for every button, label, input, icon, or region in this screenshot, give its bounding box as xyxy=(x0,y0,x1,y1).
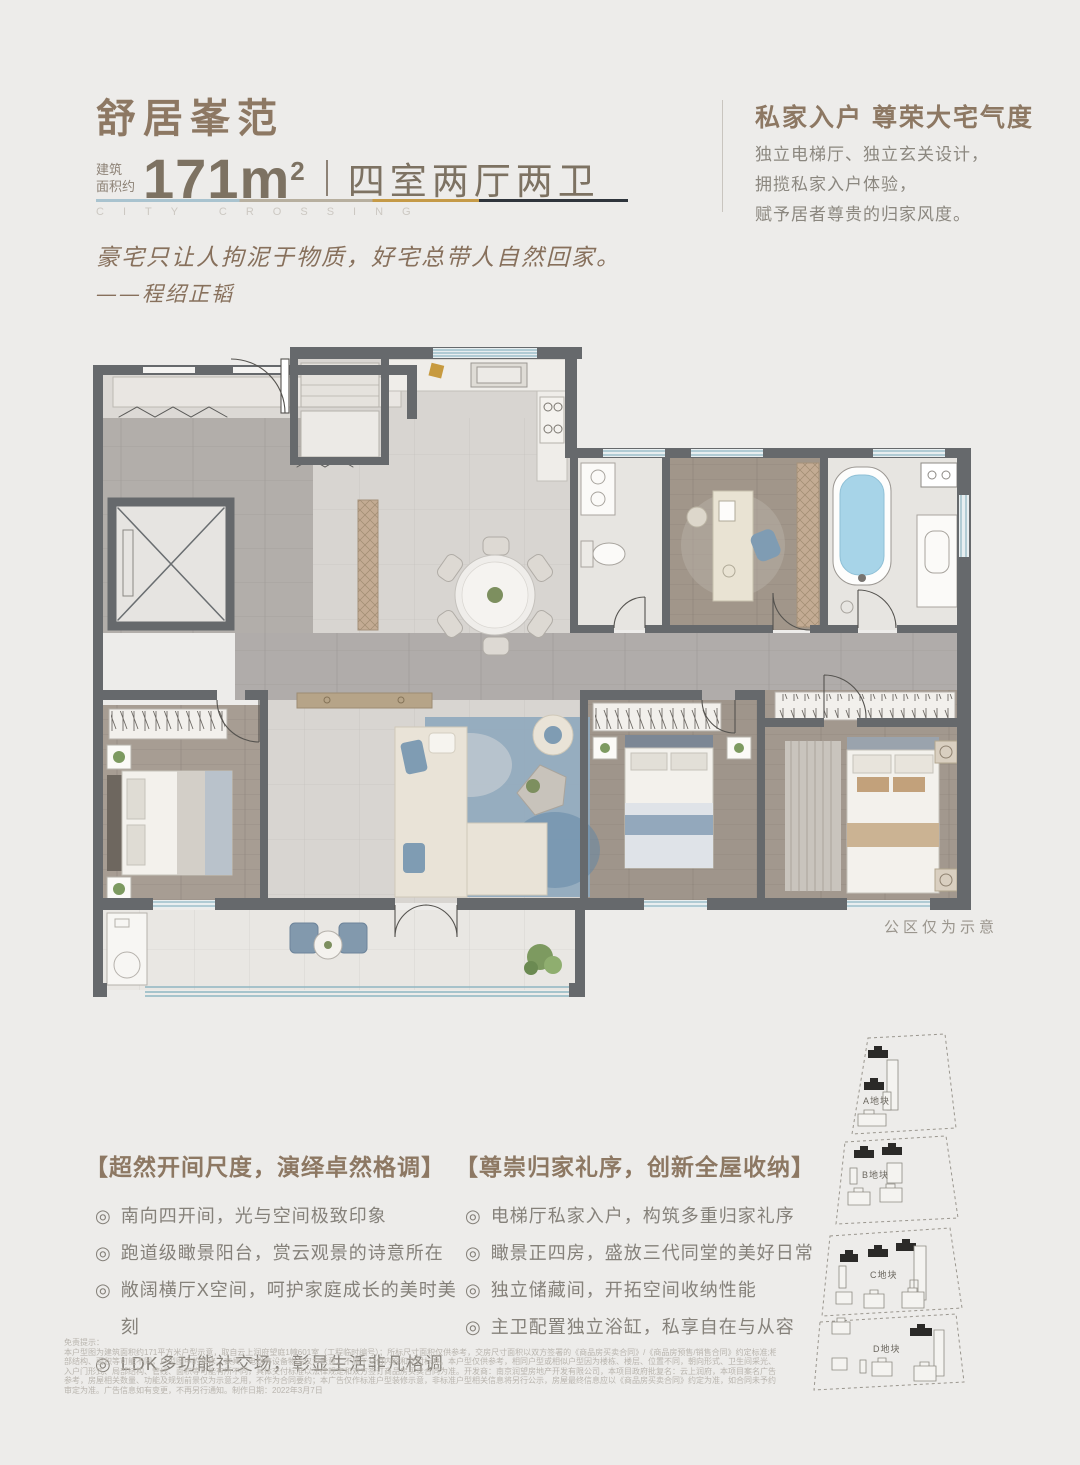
disclaimer-line: 参考，房屋相关数量、功能及规划前景仅为示意之用，不作为合同要约；本广告仅作标准户… xyxy=(64,1376,776,1386)
highlight-body: 独立电梯厅、独立玄关设计， 拥揽私家入户体验， 赋予居者尊贵的归家风度。 xyxy=(755,140,989,230)
highlight-line: 独立电梯厅、独立玄关设计， xyxy=(755,140,989,170)
disclaimer-line: 入户门形式、局部结构、管线、面积等可能有所不同，具体交付标准以法律规定和双方签订… xyxy=(64,1367,776,1377)
feature-item: ◎跑道级瞰景阳台，赏云观景的诗意所在 xyxy=(95,1235,465,1272)
toilet-tank xyxy=(581,541,593,567)
bullet-icon: ◎ xyxy=(95,1272,112,1346)
highlight-line: 拥揽私家入户体验， xyxy=(755,170,989,200)
bullet-icon: ◎ xyxy=(465,1235,482,1272)
brand-gradient-line xyxy=(96,199,628,202)
page-title: 舒居峯范 xyxy=(96,86,284,144)
watermark-city-crossing: CITY CROSSING xyxy=(96,206,636,218)
parcel-b-label: B地块 xyxy=(862,1169,889,1180)
highlight-title: 私家入户 尊荣大宅气度 xyxy=(755,98,1034,134)
disclaimer-line: 本户型图为建筑面积约171平方米户型示意，取自云上润府望庭1幢601室（工程临时… xyxy=(64,1348,776,1358)
nightstand xyxy=(935,741,957,763)
feature-item: ◎南向四开间，光与空间极致印象 xyxy=(95,1198,465,1235)
layout-text: 四室两厅两卫 xyxy=(348,151,600,205)
toilet xyxy=(593,543,625,565)
laundry-sink xyxy=(107,913,147,985)
parcel-d-label: D地块 xyxy=(873,1343,901,1354)
area-prefix: 建筑 面积约 xyxy=(96,161,135,195)
bullet-icon: ◎ xyxy=(465,1272,482,1309)
feature-item: ◎敞阔横厅X空间，呵护家庭成长的美时美刻 xyxy=(95,1272,465,1346)
bath2-vanity xyxy=(581,463,615,515)
master-rug xyxy=(785,741,841,891)
divider-bar xyxy=(326,160,328,196)
masterbed-headboard xyxy=(847,737,939,750)
disclaimer-title: 免责提示： xyxy=(64,1338,776,1348)
parcel-a-label: A地块 xyxy=(863,1095,890,1106)
disclaimer-line: 审定为准。广告信息如有变更，不再另行通知。制作日期：2022年3月7日 xyxy=(64,1386,776,1396)
bathtub-water xyxy=(840,475,884,575)
highlight-line: 赋予居者尊贵的归家风度。 xyxy=(755,200,989,230)
disclaimer-line: 部结构、面积等可能不同，户型图中的装修、家具、电器等设备物品仅为示意，不属于交付… xyxy=(64,1357,776,1367)
media-console xyxy=(297,693,432,708)
bullet-icon: ◎ xyxy=(95,1198,112,1235)
quote-text: 豪宅只让人拘泥于物质，好宅总带人自然回家。 xyxy=(96,238,621,272)
masterbath-shelf xyxy=(921,463,957,487)
highlight-divider xyxy=(722,100,723,212)
feature-item: ◎电梯厅私家入户，构筑多重归家礼序 xyxy=(465,1198,835,1235)
bullet-icon: ◎ xyxy=(465,1198,482,1235)
features-left-title: 【超然开间尺度，演绎卓然格调】 xyxy=(85,1148,465,1182)
area-row: 建筑 面积约 171m2 四室两厅两卫 xyxy=(96,143,600,207)
plan-note: 公区仅为示意 xyxy=(884,916,998,937)
balcony-chair xyxy=(290,923,318,953)
bed2-headboard xyxy=(625,735,713,748)
flyer-page: 舒居峯范 建筑 面积约 171m2 四室两厅两卫 CITY CROSSING 豪… xyxy=(0,0,1080,1465)
balcony-chair xyxy=(339,923,367,953)
parcel-c-label: C地块 xyxy=(870,1269,898,1280)
sofa-cushion xyxy=(403,843,425,873)
site-map: A地块 B地块 C地块 D地块 xyxy=(810,1030,1075,1450)
bullet-icon: ◎ xyxy=(95,1235,112,1272)
features-right: 【尊崇归家礼序，创新全屋收纳】 ◎电梯厅私家入户，构筑多重归家礼序 ◎瞰景正四房… xyxy=(455,1148,835,1346)
feature-item: ◎独立储藏间，开拓空间收纳性能 xyxy=(465,1272,835,1309)
feature-item: ◎瞰景正四房，盛放三代同堂的美好日常 xyxy=(465,1235,835,1272)
quote-author: ——程绍正韬 xyxy=(96,278,234,308)
bed1-headboard xyxy=(107,775,122,871)
sofa-chaise xyxy=(467,823,547,895)
features-right-title: 【尊崇归家礼序，创新全屋收纳】 xyxy=(455,1148,835,1182)
area-value: 171m2 xyxy=(143,143,306,207)
nightstand xyxy=(935,869,957,891)
floor-plan xyxy=(85,345,985,1015)
disclaimer: 免责提示： 本户型图为建筑面积约171平方米户型示意，取自云上润府望庭1幢601… xyxy=(64,1338,776,1395)
masterbath-vanity xyxy=(917,515,957,607)
